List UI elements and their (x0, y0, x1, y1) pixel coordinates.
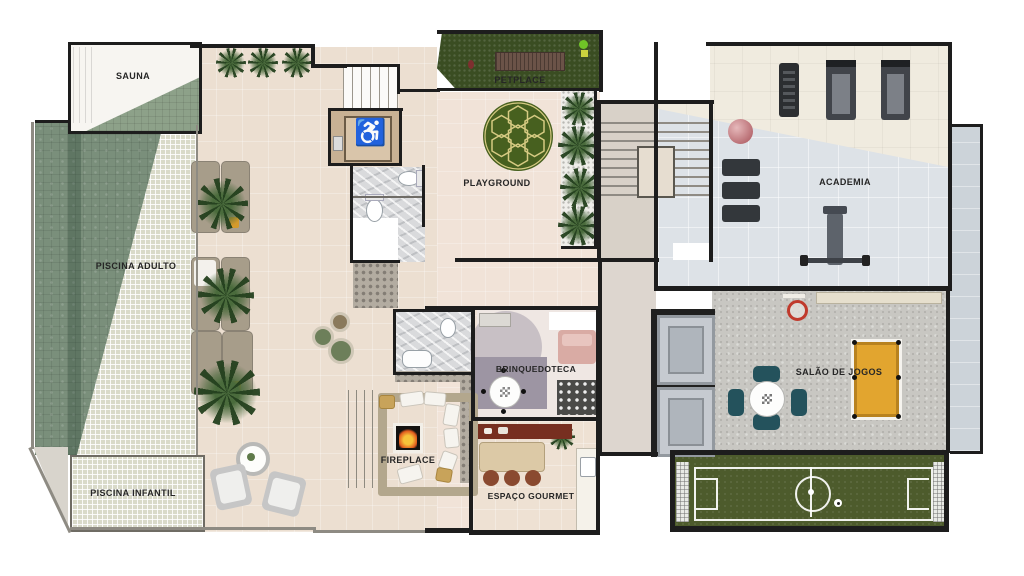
pergola-slats (343, 66, 398, 108)
accessible-wc: ♿ (330, 110, 400, 165)
basketball-hoop (787, 300, 808, 321)
game-table (749, 381, 785, 417)
label-piscina-infantil: PISCINA INFANTIL (90, 488, 176, 498)
outer-wall (31, 122, 34, 449)
pool-edge (196, 125, 198, 455)
wall (948, 42, 952, 291)
kids-chair (501, 409, 506, 414)
dishware (498, 427, 508, 434)
pet-toy-ball (579, 40, 588, 49)
side-terrace-strip (950, 127, 981, 451)
wall (350, 165, 353, 263)
label-petplace: PETPLACE (494, 75, 545, 85)
center-spot (808, 489, 814, 495)
sofa-cushion (443, 427, 460, 448)
outer-wall (313, 530, 427, 533)
game-chair (791, 389, 807, 416)
deck-slats (348, 390, 374, 488)
wall (425, 306, 600, 310)
polka-dot-rug (557, 380, 597, 415)
wall (599, 30, 603, 92)
machine-detail (783, 71, 795, 109)
fire-flame (399, 428, 417, 448)
goal-net-left (676, 462, 689, 522)
checkerboard (500, 387, 510, 397)
table-plant (247, 453, 255, 461)
climbing-dome (481, 99, 555, 173)
playroom-niche (549, 312, 596, 330)
wc-sink (333, 136, 343, 151)
gym-bench (722, 182, 760, 199)
planter-shrub (562, 92, 596, 126)
wall (35, 120, 71, 123)
gym-bench (722, 205, 760, 222)
gourmet-island (479, 442, 545, 472)
label-playground: PLAYGROUND (463, 178, 530, 188)
wall (950, 124, 983, 127)
label-sauna: SAUNA (116, 71, 150, 81)
wall (654, 104, 658, 288)
label-espaco-gourmet: ESPAÇO GOURMET (488, 491, 575, 501)
floor-plan: ♿ (0, 0, 1024, 576)
games-bench (816, 292, 942, 304)
elevator-cab-2 (657, 387, 715, 457)
wall (393, 372, 473, 375)
wall (328, 108, 403, 111)
bathtub (402, 350, 432, 368)
armchair-cushion (215, 470, 247, 505)
wall (328, 108, 331, 166)
gym-alcove (658, 46, 710, 102)
game-chair (753, 366, 780, 382)
wall (670, 450, 949, 455)
treadmill-console (881, 60, 910, 67)
game-chair (728, 389, 744, 416)
exercise-ball (728, 119, 753, 144)
outer-wall (70, 527, 316, 530)
treadmill-belt (832, 74, 850, 114)
label-salao-de-jogos: SALÃO DE JOGOS (796, 367, 883, 377)
wall (950, 451, 983, 454)
wall (946, 291, 950, 453)
wall (350, 260, 400, 263)
palm-plant (194, 360, 260, 426)
wall (709, 100, 713, 262)
bar-stool (525, 470, 541, 486)
barbell (806, 258, 864, 263)
wall (437, 30, 603, 34)
wall (654, 42, 658, 106)
wall (654, 286, 952, 291)
elevator-cab-floor (668, 398, 704, 446)
pocket (852, 340, 857, 345)
label-piscina-adulto: PISCINA ADULTO (96, 261, 177, 271)
kitchen-sink (580, 457, 596, 477)
pool-beach-entry (35, 123, 196, 455)
pet-toy-block (581, 50, 588, 57)
treadmill (826, 60, 856, 120)
wall (397, 89, 440, 92)
wall (469, 421, 473, 532)
pocket (852, 414, 857, 419)
potted-plant (216, 48, 246, 78)
elevator-block (651, 309, 715, 457)
elevator-cab-1 (657, 315, 715, 385)
wall (471, 309, 475, 421)
label-brinquedoteca: BRINQUEDOTECA (496, 364, 576, 374)
wall (455, 258, 599, 262)
dishware (484, 428, 492, 434)
basketball-backboard (783, 294, 805, 298)
planter-shrub (558, 126, 598, 166)
goal-box-right (907, 478, 929, 510)
kids-sofa (558, 330, 596, 364)
stone-path (353, 262, 398, 308)
weight-plate (862, 255, 870, 266)
wall (311, 64, 347, 68)
treadmill (881, 60, 910, 120)
stair-opening (673, 243, 710, 260)
sauna-room (68, 42, 202, 134)
ball-pattern (837, 502, 840, 505)
bench-press-head (823, 206, 847, 214)
label-academia: ACADEMIA (819, 177, 871, 187)
pool-lane-stripe (68, 123, 81, 455)
wall (980, 124, 983, 454)
wall (393, 309, 396, 375)
pouf (379, 395, 395, 409)
adult-pool (35, 123, 196, 455)
wall (944, 450, 949, 532)
weight-plate (800, 255, 808, 266)
wall (352, 196, 424, 198)
gym-bench (722, 159, 760, 176)
storage-room (352, 218, 398, 262)
bar-stool (483, 470, 499, 486)
wall (469, 530, 600, 535)
wheelchair-accessible-icon: ♿ (354, 117, 386, 148)
planter-pot (330, 312, 350, 332)
fire-pit (393, 423, 423, 453)
pocket (896, 340, 901, 345)
hall-corridor (600, 262, 656, 455)
wall (422, 165, 425, 227)
wall (190, 44, 313, 48)
pocket (896, 414, 901, 419)
sofa-cushion (423, 391, 446, 407)
wall (670, 526, 949, 532)
wall (597, 100, 601, 262)
toy-shelf (479, 313, 511, 327)
wall (598, 452, 658, 456)
dog-figure (468, 60, 474, 69)
pool-table (851, 339, 902, 420)
wall (399, 108, 402, 166)
wall (425, 528, 473, 533)
armchair-cushion (267, 477, 301, 511)
checkerboard (762, 394, 772, 404)
soccer-ball-icon (834, 499, 842, 507)
gourmet-counter (478, 424, 572, 439)
elevator-cab-floor (668, 326, 704, 374)
wall (343, 64, 400, 67)
bar-stool (504, 470, 520, 486)
palm-plant (198, 268, 254, 324)
kids-chair (481, 389, 486, 394)
treadmill-belt (887, 74, 904, 114)
label-fireplace: FIREPLACE (381, 455, 436, 465)
wall (561, 246, 597, 249)
treadmill-console (826, 60, 856, 67)
toilet (366, 199, 383, 222)
wall (706, 42, 952, 46)
toilet (440, 318, 456, 338)
pouf (435, 467, 453, 484)
sofa-cushion (562, 334, 592, 346)
wall (597, 258, 659, 262)
wall (437, 88, 601, 91)
potted-plant (282, 48, 312, 78)
wall (328, 163, 402, 166)
goal-box-left (696, 478, 718, 510)
wall (473, 417, 596, 421)
sauna-bench (73, 47, 93, 123)
wall (670, 450, 675, 531)
palm-plant (196, 178, 248, 230)
cable-machine (779, 63, 799, 117)
kids-table (489, 376, 521, 408)
pet-agility-deck (495, 52, 565, 71)
potted-plant (248, 48, 278, 78)
kids-chair (521, 389, 526, 394)
wall (596, 306, 600, 535)
planter-shrub (558, 206, 598, 246)
pocket (896, 375, 901, 380)
planter-pot (328, 338, 354, 364)
